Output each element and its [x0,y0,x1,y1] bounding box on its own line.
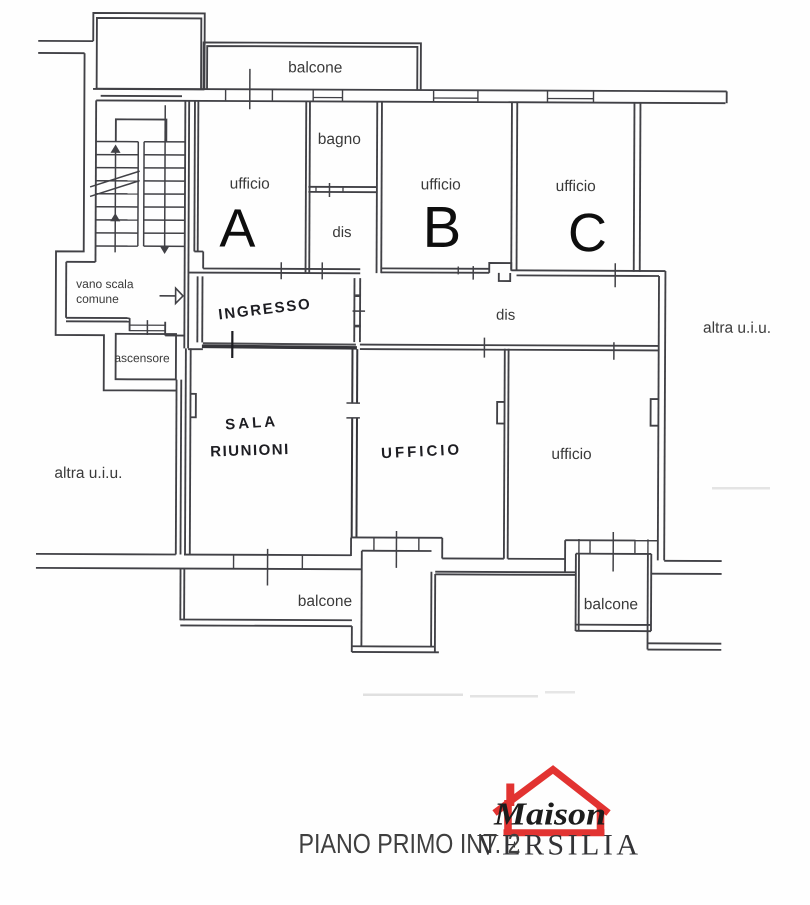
svg-text:RIUNIONI: RIUNIONI [210,441,290,460]
svg-text:ufficio: ufficio [230,176,270,193]
svg-text:B: B [422,195,461,260]
svg-text:SALA: SALA [225,413,279,433]
svg-text:ufficio: ufficio [551,446,591,463]
svg-text:altra u.i.u.: altra u.i.u. [54,465,122,482]
svg-text:PIANO PRIMO INT. 2: PIANO PRIMO INT. 2 [299,828,521,859]
svg-text:balcone: balcone [288,59,342,76]
svg-text:bagno: bagno [318,131,361,148]
svg-text:dis: dis [332,224,351,241]
svg-text:comune: comune [76,292,119,306]
svg-text:Maison: Maison [493,796,606,832]
svg-text:vano scala: vano scala [76,277,134,291]
svg-text:ascensore: ascensore [114,351,170,365]
svg-text:ufficio: ufficio [556,178,596,195]
svg-text:dis: dis [496,307,515,324]
svg-text:balcone: balcone [584,596,638,613]
svg-text:ufficio: ufficio [421,176,461,193]
svg-text:balcone: balcone [298,593,352,610]
svg-text:A: A [219,198,255,258]
svg-text:C: C [568,203,607,263]
svg-text:altra u.i.u.: altra u.i.u. [703,320,771,337]
